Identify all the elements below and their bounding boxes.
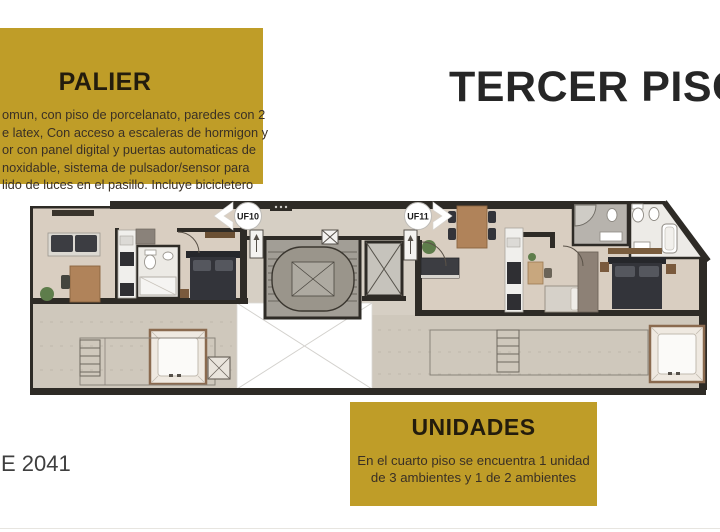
unidades-line-2: de 3 ambientes y 1 de 2 ambientes	[350, 469, 597, 486]
elevator	[366, 242, 402, 296]
bottom-left-text: E 2041	[1, 451, 71, 477]
palier-line-1: omun, con piso de porcelanato, paredes c…	[2, 106, 268, 124]
kitchen-right	[505, 228, 523, 312]
palier-line-4: noxidable, sistema de pulsador/sensor pa…	[2, 159, 268, 177]
uf10-label: UF10	[237, 212, 259, 222]
floor-plan: UF10 UF11	[0, 192, 720, 398]
unidades-title: UNIDADES	[350, 414, 597, 441]
palier-box: PALIER omun, con piso de porcelanato, pa…	[0, 28, 263, 184]
unidades-box: UNIDADES En el cuarto piso se encuentra …	[350, 402, 597, 506]
grill-left	[208, 357, 230, 379]
bottom-divider	[0, 528, 720, 529]
unidades-text: En el cuarto piso se encuentra 1 unidad …	[350, 452, 597, 486]
wardrobe-right	[578, 252, 598, 312]
jacuzzi-right	[650, 326, 704, 382]
floor-title: TERCER PISO	[449, 66, 720, 109]
palier-text: omun, con piso de porcelanato, paredes c…	[2, 106, 268, 194]
bed-second-bedroom	[545, 286, 579, 312]
unidades-line-1: En el cuarto piso se encuentra 1 unidad	[350, 452, 597, 469]
palier-line-5: lido de luces en el pasillo. Incluye bic…	[2, 176, 268, 194]
palier-line-3: or con panel digital y puertas automatic…	[2, 141, 268, 159]
palier-line-2: e latex, Con acceso a escaleras de hormi…	[2, 124, 268, 142]
bathroom-left-unit	[137, 246, 179, 298]
plant-left	[40, 287, 54, 301]
sofa-right	[421, 258, 459, 278]
sofa-left	[48, 233, 100, 256]
palier-title: PALIER	[0, 68, 210, 97]
uf11-label: UF11	[407, 212, 429, 222]
bathroom-right-unit-1	[573, 203, 628, 245]
flyer-page: PALIER omun, con piso de porcelanato, pa…	[0, 0, 720, 532]
